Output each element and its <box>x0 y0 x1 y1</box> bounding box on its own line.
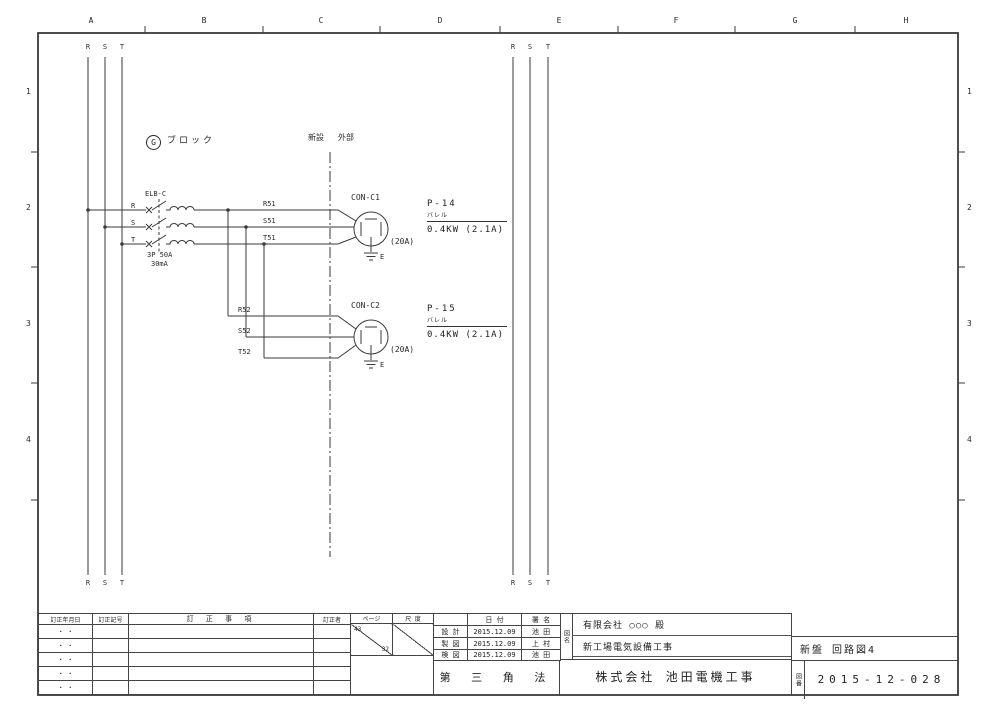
bus-right-r-top: R <box>511 44 515 51</box>
drawing-name-vertical-text: 図名 <box>562 614 571 659</box>
sheet-title-cell: 新盤 回路図4 <box>792 637 958 661</box>
projection-method-cell: 第 三 角 法 <box>433 660 560 695</box>
connector2-rating: (20A) <box>390 346 414 354</box>
page-scale-empty-cell <box>351 656 434 695</box>
page-numerator: 43 <box>354 626 361 633</box>
wire-label-s52: S52 <box>238 328 251 335</box>
connector1-label: CON-C1 <box>351 194 380 202</box>
bus-right-s-top: S <box>528 44 532 51</box>
wire-label-r52: R52 <box>238 307 251 314</box>
approval-role: 製 図 <box>434 638 468 650</box>
load1-spec: 0.4KW (2.1A) <box>427 221 507 235</box>
boundary-left-label: 新設 <box>296 134 324 142</box>
load1-block: P-14 バレル 0.4KW (2.1A) <box>427 199 507 235</box>
load2-block: P-15 バレル 0.4KW (2.1A) <box>427 304 507 340</box>
grid-row-1-right: 1 <box>967 88 972 96</box>
bus-left-s-bottom: S <box>103 580 107 587</box>
connector1-earth-symbol <box>364 246 378 260</box>
grid-col-h: H <box>904 17 909 25</box>
boundary-right-label: 外部 <box>338 134 354 142</box>
scale-value-cell <box>393 624 434 656</box>
revision-row-mark: ・ ・ <box>39 625 93 639</box>
grid-ticks <box>31 26 965 500</box>
revision-col-desc: 訂 正 事 項 <box>129 614 314 625</box>
grid-row-2-left: 2 <box>26 204 31 212</box>
approval-sign-header: 署 名 <box>522 614 561 626</box>
drawing-sheet: A B C D E F G H 1 2 3 4 1 2 3 4 R S T R … <box>0 0 1000 707</box>
grid-row-4-left: 4 <box>26 436 31 444</box>
approval-role: 検 図 <box>434 650 468 661</box>
connector2-label: CON-C2 <box>351 302 380 310</box>
revision-row-mark: ・ ・ <box>39 653 93 667</box>
breaker-spec-line1: 3P 50A <box>147 252 172 259</box>
drawing-number: 2015-12-028 <box>805 661 958 699</box>
revision-row-mark: ・ ・ <box>39 667 93 681</box>
schematic-lines <box>0 0 1000 707</box>
load1-name: P-14 <box>427 199 507 209</box>
wire-label-t52: T52 <box>238 349 251 356</box>
grid-col-a: A <box>89 17 94 25</box>
approval-role: 設 計 <box>434 626 468 638</box>
revision-col-date: 訂正年月日 <box>39 614 93 625</box>
scale-header: 尺 度 <box>393 614 434 624</box>
page-denominator: 32 <box>382 646 389 653</box>
breaker-terminal-r: R <box>131 203 135 210</box>
bus-left-t-top: T <box>120 44 124 51</box>
frame-border <box>38 33 958 695</box>
connector1-earth-label: E <box>380 254 384 261</box>
breaker-terminal-t: T <box>131 237 135 244</box>
connector2-earth-label: E <box>380 362 384 369</box>
feeder-wires <box>88 210 146 244</box>
block-tag-label: ブロック <box>167 137 215 146</box>
approval-date-header: 日 付 <box>468 614 522 626</box>
grid-col-g: G <box>793 17 798 25</box>
revision-col-code: 訂正記号 <box>93 614 129 625</box>
grid-col-d: D <box>438 17 443 25</box>
approval-name: 池 田 <box>522 626 561 638</box>
grid-row-3-right: 3 <box>967 320 972 328</box>
load2-name: P-15 <box>427 304 507 314</box>
bus-left-s-top: S <box>103 44 107 51</box>
revision-row-mark: ・ ・ <box>39 639 93 653</box>
grid-col-e: E <box>557 17 562 25</box>
titleblock-right-section: 新盤 回路図4 図番 2015-12-028 <box>791 613 958 695</box>
wire-label-r51: R51 <box>263 201 276 208</box>
wire-label-s51: S51 <box>263 218 276 225</box>
bus-left-t-bottom: T <box>120 580 124 587</box>
drawing-number-vertical-label: 図番 <box>792 661 805 699</box>
grid-row-3-left: 3 <box>26 320 31 328</box>
drawing-name-vertical-label: 図名 <box>560 613 573 660</box>
breaker-spec-line2: 30mA <box>151 261 168 268</box>
drawing-number-row: 図番 2015-12-028 <box>792 661 958 699</box>
connector2-earth-symbol <box>364 354 378 368</box>
bus-right-t-top: T <box>546 44 550 51</box>
page-header: ページ <box>351 614 393 624</box>
approval-date: 2015.12.09 <box>468 650 522 661</box>
page-scale-table: ページ 尺 度 43 32 <box>350 613 434 695</box>
grid-row-1-left: 1 <box>26 88 31 96</box>
breaker-name-label: ELB-C <box>145 191 166 198</box>
load2-type: バレル <box>427 315 507 324</box>
approval-table: 日 付 署 名 設 計 2015.12.09 池 田 製 図 2015.12.0… <box>433 613 561 661</box>
zct-symbol <box>166 207 194 244</box>
connector1-rating: (20A) <box>390 238 414 246</box>
grid-row-2-right: 2 <box>967 204 972 212</box>
load2-spec: 0.4KW (2.1A) <box>427 326 507 340</box>
revision-table: 訂正年月日 訂正記号 訂 正 事 項 訂正者 ・ ・ ・ ・ ・ ・ ・ ・ ・… <box>38 613 351 695</box>
approval-corner-cell <box>434 614 468 626</box>
project-line: 新工場電気設備工事 <box>573 636 791 657</box>
company-cell: 株式会社 池田電機工事 <box>560 660 791 695</box>
bus-left-r-bottom: R <box>86 580 90 587</box>
branch-wires <box>228 210 264 358</box>
approval-date: 2015.12.09 <box>468 626 522 638</box>
title-block: 訂正年月日 訂正記号 訂 正 事 項 訂正者 ・ ・ ・ ・ ・ ・ ・ ・ ・… <box>38 613 958 695</box>
right-empty-cell <box>792 613 958 637</box>
revision-row-mark: ・ ・ <box>39 681 93 695</box>
breaker-terminal-marks <box>146 207 152 247</box>
breaker-terminal-s: S <box>131 220 135 227</box>
client-line: 有限会社 ○○○ 殿 <box>573 614 791 636</box>
grid-col-b: B <box>202 17 207 25</box>
approval-date: 2015.12.09 <box>468 638 522 650</box>
block-tag-circle: G <box>146 135 161 150</box>
load1-type: バレル <box>427 210 507 219</box>
bus-left-r-top: R <box>86 44 90 51</box>
approval-name: 池 田 <box>522 650 561 661</box>
client-project-box: 有限会社 ○○○ 殿 新工場電気設備工事 <box>573 613 791 660</box>
bus-right-s-bottom: S <box>528 580 532 587</box>
page-value-cell: 43 32 <box>351 624 393 656</box>
grid-col-f: F <box>674 17 679 25</box>
wire-label-t51: T51 <box>263 235 276 242</box>
grid-col-c: C <box>319 17 324 25</box>
bus-right-r-bottom: R <box>511 580 515 587</box>
revision-col-by: 訂正者 <box>314 614 351 625</box>
bus-right-t-bottom: T <box>546 580 550 587</box>
grid-row-4-right: 4 <box>967 436 972 444</box>
approval-name: 上 村 <box>522 638 561 650</box>
drawing-number-vertical-text: 図番 <box>794 661 803 699</box>
